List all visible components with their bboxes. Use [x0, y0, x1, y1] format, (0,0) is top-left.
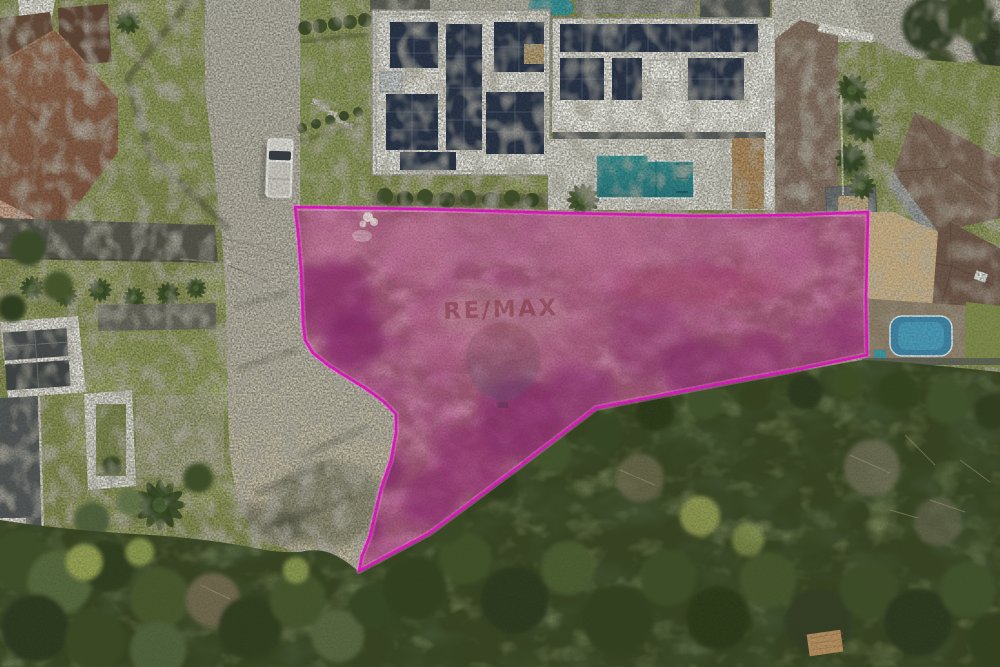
photo-grain-overlay: [0, 0, 1000, 667]
aerial-photo: RE/MAX: [0, 0, 1000, 667]
aerial-scene: RE/MAX: [0, 0, 1000, 667]
